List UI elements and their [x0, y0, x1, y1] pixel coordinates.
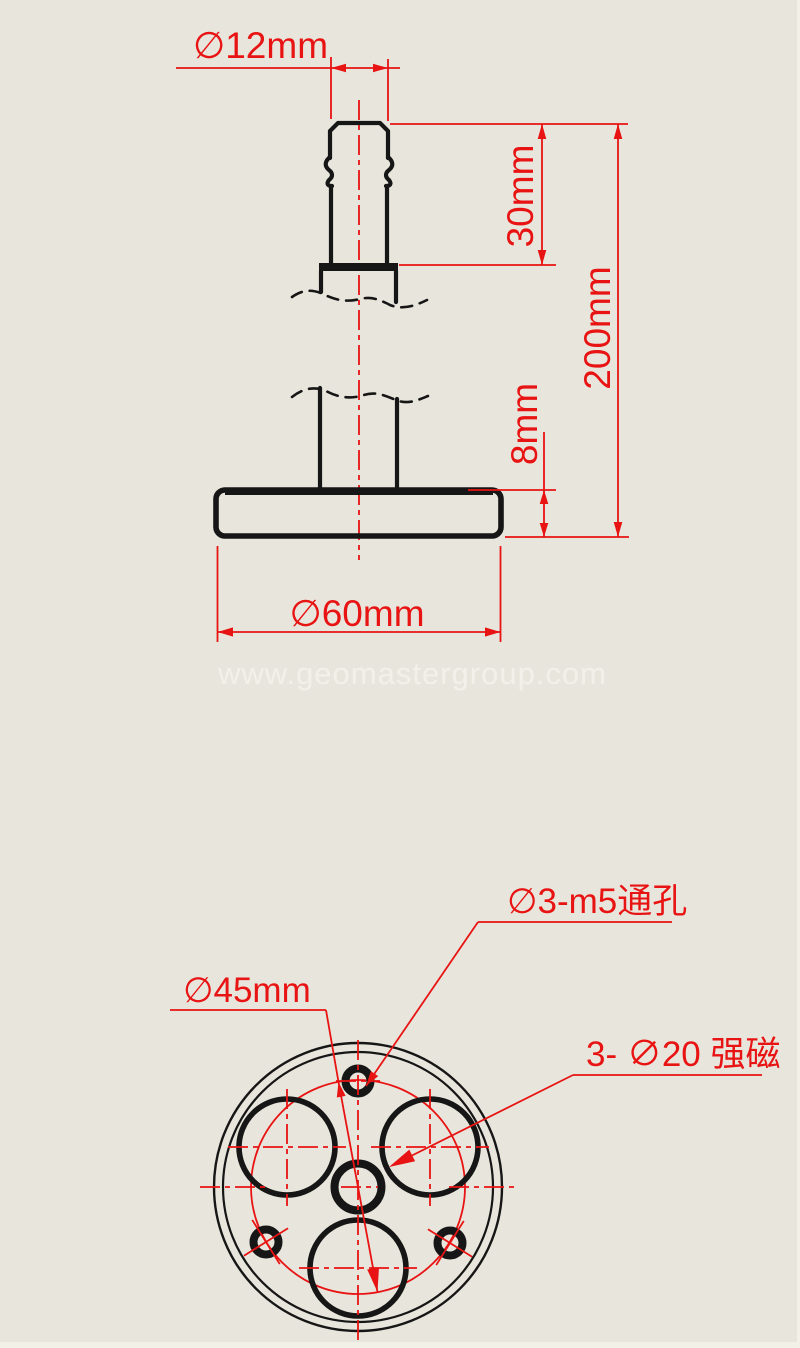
dimension-stud-diameter: ∅12mm: [176, 25, 400, 121]
dimension-base-diameter: ∅60mm: [218, 546, 501, 642]
stud-flange: [319, 263, 398, 271]
dimension-stud-length: 30mm: [390, 124, 628, 265]
stud-length-label: 30mm: [500, 145, 541, 248]
base-thickness-label: 8mm: [504, 383, 545, 465]
drawing-canvas: ∅12mm 30mm 200mm 8mm: [0, 0, 800, 1348]
side-view: ∅12mm 30mm 200mm 8mm: [176, 25, 629, 642]
stud-neck-left: [326, 157, 332, 186]
magnets-label: 3- ∅20 强磁: [586, 1035, 781, 1074]
stud-diameter-label: ∅12mm: [193, 25, 328, 66]
thread-holes-label: ∅3-m5通孔: [507, 882, 687, 921]
bottom-view: ∅3-m5通孔 ∅45mm 3- ∅20 强磁: [170, 882, 781, 1344]
bolt-circle-label: ∅45mm: [183, 971, 311, 1010]
bottom-view-centerlines: [200, 1040, 516, 1344]
watermark-text: www.geomastergroup.com: [217, 656, 607, 691]
break-line-lower: [292, 388, 428, 402]
dimension-base-thickness: 8mm: [468, 383, 556, 537]
base-diameter-label: ∅60mm: [289, 593, 424, 634]
stud-neck-right: [386, 157, 392, 186]
technical-drawing-page: ∅12mm 30mm 200mm 8mm: [0, 0, 800, 1348]
page-bottom-edge: [0, 1342, 800, 1348]
total-height-label: 200mm: [577, 266, 618, 389]
